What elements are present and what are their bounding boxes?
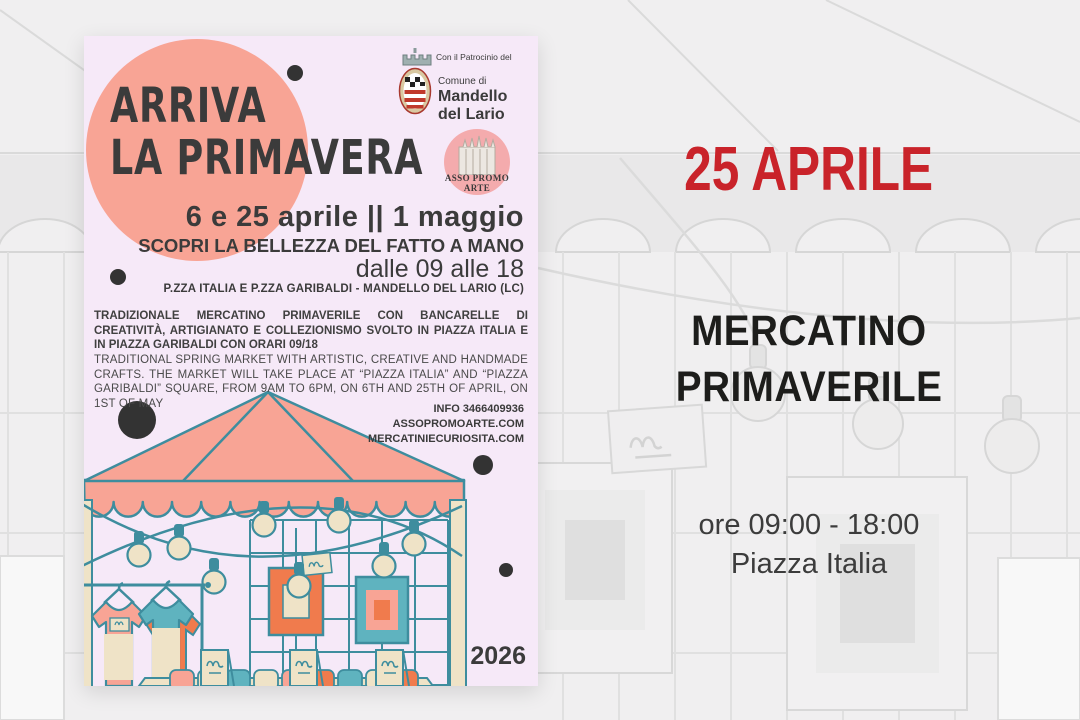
poster-location: P.ZZA ITALIA E P.ZZA GARIBALDI - MANDELL… xyxy=(164,283,524,295)
poster-dates: 6 e 25 aprile || 1 maggio xyxy=(186,201,524,234)
event-time: ore 09:00 - 18:00 xyxy=(538,506,1080,545)
headline-line1: ARRIVA xyxy=(110,80,423,132)
info-website-2: MERCATINIECURIOSITA.COM xyxy=(368,432,524,447)
poster-year: 2026 xyxy=(470,642,526,671)
event-title: MERCATINO PRIMAVERILE xyxy=(538,303,1080,415)
headline-line2: LA PRIMAVERA xyxy=(110,132,423,184)
event-date: 25 APRILE xyxy=(538,134,1080,205)
patronage-name: Mandello del Lario xyxy=(438,88,507,124)
comune-coat-of-arms-icon xyxy=(398,48,432,120)
event-details: ore 09:00 - 18:00 Piazza Italia xyxy=(538,506,1080,584)
patronage-comune: Comune di xyxy=(438,76,486,87)
patronage-intro: Con il Patrocinio del xyxy=(436,52,512,62)
event-poster: ARRIVA LA PRIMAVERA Con il Patrocinio de… xyxy=(84,36,538,686)
info-website-1: ASSOPROMOARTE.COM xyxy=(368,417,524,432)
poster-hours: dalle 09 alle 18 xyxy=(356,255,524,284)
asso-logo-text: ASSO PROMO ARTE xyxy=(430,173,524,193)
event-panel: 25 APRILE MERCATINO PRIMAVERILE ore 09:0… xyxy=(538,0,1080,720)
event-title-line1: MERCATINO xyxy=(691,303,927,359)
event-date-text: 25 APRILE xyxy=(685,134,934,205)
salmon-tshirt xyxy=(92,602,146,686)
description-italian: TRADIZIONALE MERCATINO PRIMAVERILE CON B… xyxy=(94,309,528,353)
poster-tagline: SCOPRI LA BELLEZZA DEL FATTO A MANO xyxy=(138,235,524,257)
tent-valance xyxy=(84,480,464,517)
price-sign xyxy=(302,553,332,576)
event-place: Piazza Italia xyxy=(538,545,1080,584)
info-block: INFO 3466409936 ASSOPROMOARTE.COM MERCAT… xyxy=(368,402,524,447)
info-phone: INFO 3466409936 xyxy=(368,402,524,417)
event-title-line2: PRIMAVERILE xyxy=(676,359,943,415)
table-signs xyxy=(201,650,409,686)
cathedral-icon xyxy=(455,135,499,175)
clothes-rack xyxy=(84,581,211,686)
